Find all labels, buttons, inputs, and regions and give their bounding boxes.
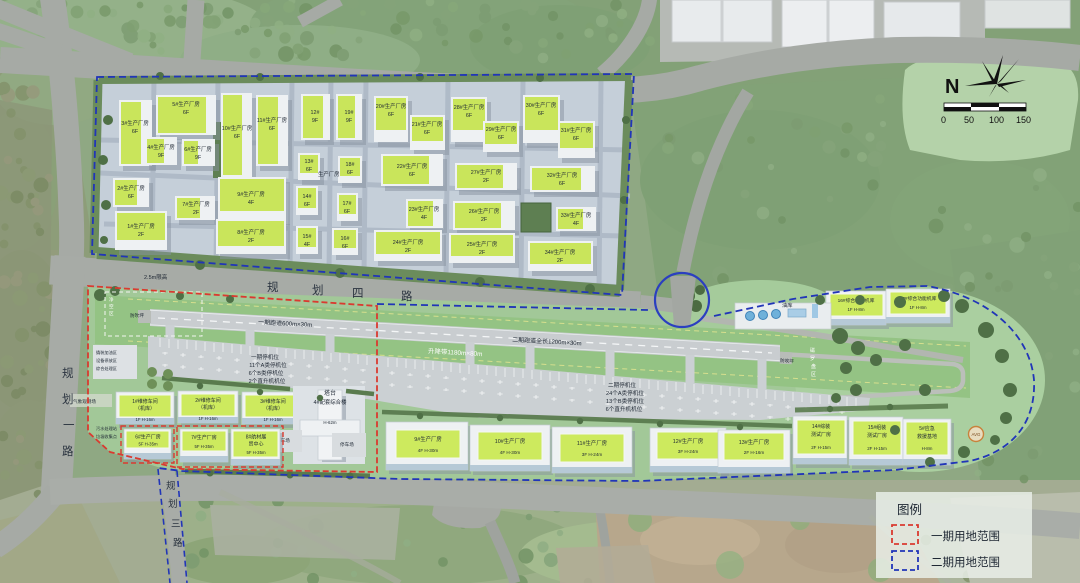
svg-text:3#维修车间: 3#维修车间 <box>260 398 286 405</box>
svg-text:4F: 4F <box>248 200 255 206</box>
svg-text:一期用地范围: 一期用地范围 <box>931 529 1000 543</box>
svg-text:7#生产厂房: 7#生产厂房 <box>182 200 210 208</box>
svg-text:6#生产厂房: 6#生产厂房 <box>184 145 212 153</box>
svg-text:9#生产厂房: 9#生产厂房 <box>414 435 442 443</box>
svg-text:11#生产厂房: 11#生产厂房 <box>577 439 607 447</box>
svg-text:路: 路 <box>62 444 74 458</box>
svg-text:2#维修车间: 2#维修车间 <box>195 397 221 404</box>
svg-text:6个B类停机位: 6个B类停机位 <box>249 369 284 377</box>
svg-text:15#组装: 15#组装 <box>868 424 886 431</box>
svg-text:空: 空 <box>109 303 114 309</box>
svg-text:21#生产厂房: 21#生产厂房 <box>412 120 443 128</box>
svg-text:1F H-8m: 1F H-8m <box>847 307 864 312</box>
svg-text:1F H-16m: 1F H-16m <box>135 417 155 422</box>
svg-text:24个A类停机位: 24个A类停机位 <box>606 389 644 397</box>
svg-text:6F: 6F <box>347 170 354 176</box>
svg-text:150: 150 <box>1016 115 1031 125</box>
svg-text:9F: 9F <box>346 118 353 124</box>
svg-text:100: 100 <box>989 115 1004 125</box>
svg-text:4F H-30m: 4F H-30m <box>418 448 439 453</box>
svg-text:1#维修车间: 1#维修车间 <box>132 398 158 405</box>
svg-text:27#生产厂房: 27#生产厂房 <box>471 168 502 176</box>
svg-text:油库: 油库 <box>782 301 792 309</box>
svg-text:区: 区 <box>811 372 816 378</box>
svg-text:14#综装: 14#综装 <box>812 423 830 430</box>
svg-text:一期停机位: 一期停机位 <box>251 353 279 361</box>
svg-text:23#生产厂房: 23#生产厂房 <box>409 205 440 213</box>
svg-text:净: 净 <box>109 296 114 303</box>
svg-text:2F H-15m: 2F H-15m <box>811 445 831 450</box>
svg-text:5#生产厂房: 5#生产厂房 <box>172 100 200 108</box>
svg-text:10#生产厂房: 10#生产厂房 <box>495 437 526 445</box>
svg-text:18#: 18# <box>346 162 355 168</box>
svg-text:塔台: 塔台 <box>324 389 336 397</box>
svg-text:4F: 4F <box>573 221 580 227</box>
svg-text:6F: 6F <box>424 130 431 136</box>
svg-text:15#: 15# <box>303 234 312 240</box>
svg-text:二期用地范围: 二期用地范围 <box>931 555 1000 569</box>
svg-text:N: N <box>945 76 959 98</box>
svg-text:停车场: 停车场 <box>340 441 354 448</box>
svg-text:6F: 6F <box>344 209 351 215</box>
svg-text:25#生产厂房: 25#生产厂房 <box>467 240 498 248</box>
svg-text:6F: 6F <box>388 112 395 118</box>
svg-text:9F: 9F <box>195 155 202 161</box>
svg-text:13#生产厂房: 13#生产厂房 <box>739 438 770 446</box>
svg-text:2F: 2F <box>138 232 145 238</box>
svg-text:规: 规 <box>267 280 279 294</box>
svg-text:2F: 2F <box>193 210 200 216</box>
svg-text:2F: 2F <box>483 178 490 184</box>
svg-text:9F: 9F <box>312 118 319 124</box>
svg-text:6#生产厂房: 6#生产厂房 <box>135 434 161 441</box>
svg-text:6F: 6F <box>409 172 416 178</box>
svg-text:6F: 6F <box>466 113 473 119</box>
svg-text:6F: 6F <box>342 244 349 250</box>
svg-text:罗: 罗 <box>810 356 815 362</box>
svg-text:6F: 6F <box>234 134 241 140</box>
svg-text:一: 一 <box>63 420 75 432</box>
svg-text:2F H-15m: 2F H-15m <box>867 446 887 451</box>
svg-text:3#生产厂房: 3#生产厂房 <box>121 119 149 127</box>
svg-text:14#: 14# <box>303 194 312 200</box>
svg-text:32#生产厂房: 32#生产厂房 <box>547 171 578 179</box>
svg-text:4F: 4F <box>304 242 311 248</box>
svg-text:规: 规 <box>62 366 74 380</box>
svg-text:6F: 6F <box>304 202 311 208</box>
svg-text:6F: 6F <box>538 111 545 117</box>
svg-text:6F: 6F <box>559 181 566 187</box>
svg-text:6F: 6F <box>573 136 580 142</box>
svg-text:路: 路 <box>173 537 183 549</box>
svg-text:31#生产厂房: 31#生产厂房 <box>561 126 592 134</box>
svg-text:20#生产厂房: 20#生产厂房 <box>376 102 407 110</box>
svg-text:1F H-16m: 1F H-16m <box>263 417 283 422</box>
svg-text:生产厂房: 生产厂房 <box>318 170 340 178</box>
svg-text:4F H-30m: 4F H-30m <box>500 450 521 455</box>
svg-text:6F: 6F <box>306 167 313 173</box>
svg-text:12#生产厂房: 12#生产厂房 <box>673 437 704 445</box>
svg-text:4F: 4F <box>421 215 428 221</box>
svg-text:7#生产厂房: 7#生产厂房 <box>191 434 217 441</box>
svg-text:6F: 6F <box>128 194 135 200</box>
svg-text:28#生产厂房: 28#生产厂房 <box>454 103 485 111</box>
svg-text:垃圾收集点: 垃圾收集点 <box>96 433 117 440</box>
svg-text:6F: 6F <box>498 135 505 141</box>
svg-text:1F H-8m: 1F H-8m <box>909 305 926 310</box>
svg-text:11个A类停机位: 11个A类停机位 <box>249 361 287 369</box>
svg-text:30#生产厂房: 30#生产厂房 <box>526 101 557 109</box>
svg-text:5F H-35m: 5F H-35m <box>138 442 158 447</box>
svg-text:1F H-16m: 1F H-16m <box>198 416 218 421</box>
svg-text:AVG: AVG <box>972 432 982 437</box>
svg-text:6F: 6F <box>183 110 190 116</box>
svg-text:防吹坪: 防吹坪 <box>130 312 144 319</box>
svg-text:二期停机位: 二期停机位 <box>608 381 636 389</box>
svg-text:H-8m: H-8m <box>922 446 933 451</box>
svg-text:2F: 2F <box>248 238 255 244</box>
svg-text:0: 0 <box>941 115 946 125</box>
svg-text:划: 划 <box>312 284 324 297</box>
svg-text:污水处理站: 污水处理站 <box>96 425 117 432</box>
svg-text:图例: 图例 <box>897 503 922 517</box>
svg-text:16#: 16# <box>341 236 350 242</box>
svg-text:6F: 6F <box>132 129 139 135</box>
svg-text:（机库）: （机库） <box>135 405 155 412</box>
svg-text:H-62m: H-62m <box>323 420 337 425</box>
svg-text:设备停放区: 设备停放区 <box>96 357 117 364</box>
svg-text:路: 路 <box>401 289 413 303</box>
svg-text:划: 划 <box>168 498 178 510</box>
svg-text:17#: 17# <box>343 201 352 207</box>
svg-text:气象观测场: 气象观测场 <box>73 398 96 405</box>
svg-text:10#生产厂房: 10#生产厂房 <box>222 124 253 132</box>
svg-text:22#生产厂房: 22#生产厂房 <box>397 162 428 170</box>
svg-text:规: 规 <box>166 481 176 492</box>
svg-text:2个直升机机位: 2个直升机机位 <box>249 377 286 385</box>
svg-text:（机库）: （机库） <box>263 405 283 412</box>
svg-text:测试厂房: 测试厂房 <box>867 432 887 439</box>
svg-text:9#生产厂房: 9#生产厂房 <box>237 190 265 198</box>
svg-text:综合处理区: 综合处理区 <box>96 365 117 372</box>
svg-text:2F: 2F <box>405 248 412 254</box>
svg-text:29#生产厂房: 29#生产厂房 <box>486 125 517 133</box>
svg-text:33#生产厂房: 33#生产厂房 <box>561 211 592 219</box>
svg-text:救援基地: 救援基地 <box>917 433 937 440</box>
svg-text:11#生产厂房: 11#生产厂房 <box>257 116 287 124</box>
svg-text:4#生产厂房: 4#生产厂房 <box>147 143 175 151</box>
svg-text:5F H-35m: 5F H-35m <box>246 450 266 455</box>
svg-text:2.5m限高: 2.5m限高 <box>144 273 168 281</box>
svg-text:2F H-16m: 2F H-16m <box>744 450 765 455</box>
svg-text:3F H-24m: 3F H-24m <box>678 449 699 454</box>
svg-text:贸中心: 贸中心 <box>248 441 263 448</box>
svg-text:8#生产厂房: 8#生产厂房 <box>237 228 265 236</box>
svg-text:2F: 2F <box>481 217 488 223</box>
svg-text:12#: 12# <box>311 110 320 116</box>
svg-text:撬装加油区: 撬装加油区 <box>96 349 117 356</box>
svg-text:8#航材展: 8#航材展 <box>246 434 267 441</box>
svg-text:四: 四 <box>352 288 364 300</box>
svg-text:6个直升机机位: 6个直升机机位 <box>606 405 643 413</box>
svg-text:盘: 盘 <box>811 363 816 370</box>
svg-text:磁: 磁 <box>810 347 815 354</box>
svg-text:（机库）: （机库） <box>198 404 218 411</box>
svg-text:13个B类停机位: 13个B类停机位 <box>606 397 644 405</box>
svg-text:3F H-24m: 3F H-24m <box>582 452 603 457</box>
svg-text:1#生产厂房: 1#生产厂房 <box>127 222 155 230</box>
svg-text:26#生产厂房: 26#生产厂房 <box>469 207 500 215</box>
svg-text:19#: 19# <box>345 110 354 116</box>
svg-text:2F: 2F <box>479 250 486 256</box>
svg-text:50: 50 <box>964 115 974 125</box>
svg-text:2F: 2F <box>557 258 564 264</box>
svg-text:2#生产厂房: 2#生产厂房 <box>117 184 145 192</box>
svg-text:划: 划 <box>62 393 74 406</box>
svg-text:24#生产厂房: 24#生产厂房 <box>393 238 424 246</box>
svg-text:5F H-35m: 5F H-35m <box>194 444 214 449</box>
svg-text:9F: 9F <box>158 153 165 159</box>
svg-text:34#生产厂房: 34#生产厂房 <box>545 248 576 256</box>
svg-text:测试厂房: 测试厂房 <box>811 431 831 438</box>
svg-text:13#: 13# <box>305 159 314 165</box>
svg-text:5#应急: 5#应急 <box>919 425 935 432</box>
svg-text:6F: 6F <box>269 126 276 132</box>
svg-text:三: 三 <box>171 519 181 530</box>
svg-text:区: 区 <box>109 311 114 316</box>
